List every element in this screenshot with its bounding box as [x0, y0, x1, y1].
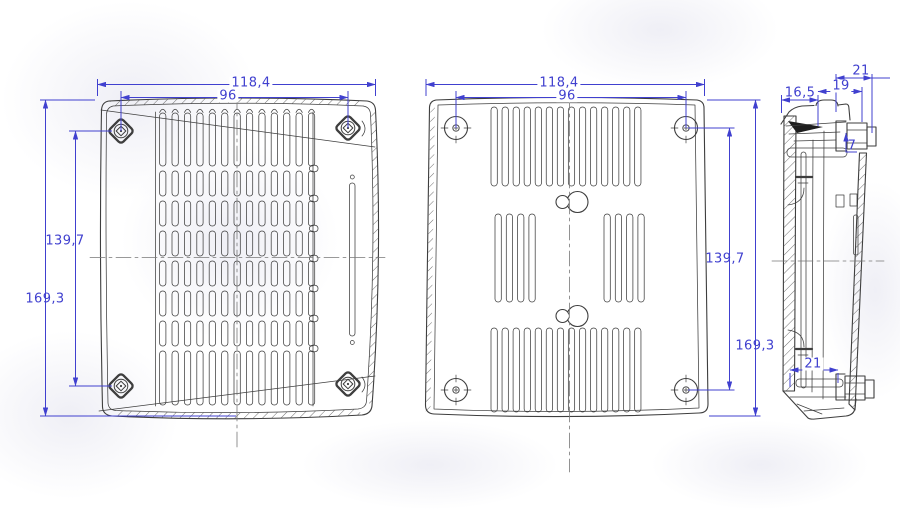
technical-drawing: 118,4 96 139,7 169,3 118,4 96 139,7 169,…: [0, 0, 900, 500]
screw-boss: [108, 115, 365, 399]
dim-front-hole-spacing-width: 96: [217, 90, 238, 103]
back-view: [426, 95, 709, 472]
dimension-lines-front: [40, 79, 376, 416]
dim-side-depth-front: 16,5: [785, 87, 816, 100]
front-view: [90, 94, 385, 449]
screw-hole: [441, 113, 701, 405]
dim-front-overall-height: 169,3: [25, 293, 64, 306]
dim-back-hole-spacing-height: 139,7: [705, 253, 744, 266]
front-vent-slots: [160, 109, 318, 405]
side-latch-slot: [350, 175, 356, 345]
dim-front-hole-spacing-height: 139,7: [45, 235, 84, 248]
dim-side-depth-middle: 19: [830, 80, 851, 93]
drawing-canvas: [0, 0, 900, 500]
keyhole-slot: [556, 192, 588, 327]
dim-side-depth-bottom: 21: [802, 358, 823, 371]
dim-side-depth-top: 21: [852, 65, 869, 78]
dim-side-clip-height: 7: [848, 140, 857, 153]
dimension-lines-back: [426, 79, 761, 416]
back-vent-slots: [491, 107, 644, 412]
dim-back-overall-height: 169,3: [735, 340, 774, 353]
side-view: [772, 100, 884, 419]
dim-back-hole-spacing-width: 96: [556, 90, 577, 103]
